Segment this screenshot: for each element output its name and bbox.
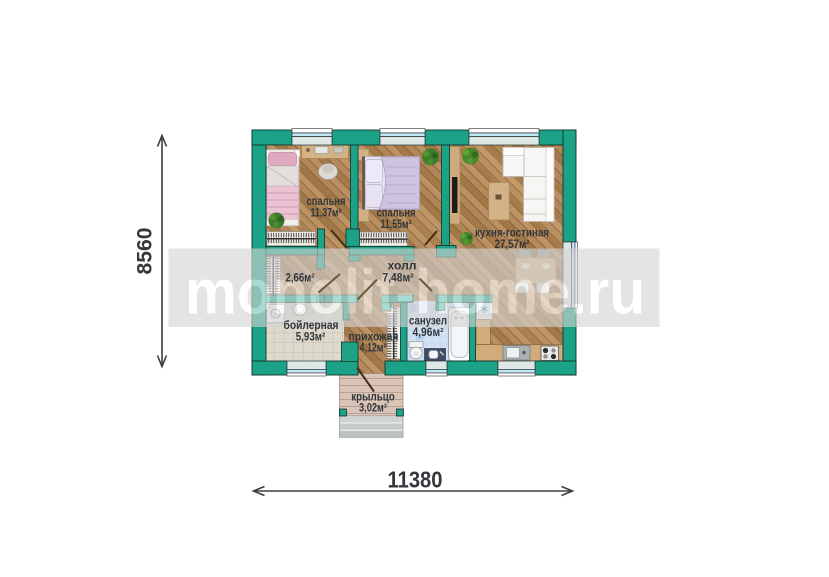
svg-text:2,66м²: 2,66м² [286, 273, 315, 285]
svg-text:8560: 8560 [134, 228, 157, 275]
svg-text:11,37м²: 11,37м² [311, 208, 342, 220]
svg-text:кухня-гостиная: кухня-гостиная [475, 228, 549, 240]
svg-text:11380: 11380 [388, 467, 443, 493]
svg-text:спальня: спальня [377, 208, 416, 220]
svg-text:санузел: санузел [409, 316, 447, 328]
svg-text:бойлерная: бойлерная [284, 320, 339, 332]
svg-text:спальня: спальня [307, 196, 346, 208]
svg-text:11,55м²: 11,55м² [381, 219, 412, 231]
svg-text:27,57м²: 27,57м² [495, 239, 530, 251]
svg-text:4,12м²: 4,12м² [360, 343, 387, 355]
svg-text:холл: холл [388, 261, 417, 273]
svg-text:5,93м²: 5,93м² [296, 332, 326, 344]
svg-text:4,96м²: 4,96м² [413, 327, 444, 339]
svg-text:3,02м²: 3,02м² [359, 403, 387, 415]
svg-text:7,48м²: 7,48м² [383, 273, 414, 285]
